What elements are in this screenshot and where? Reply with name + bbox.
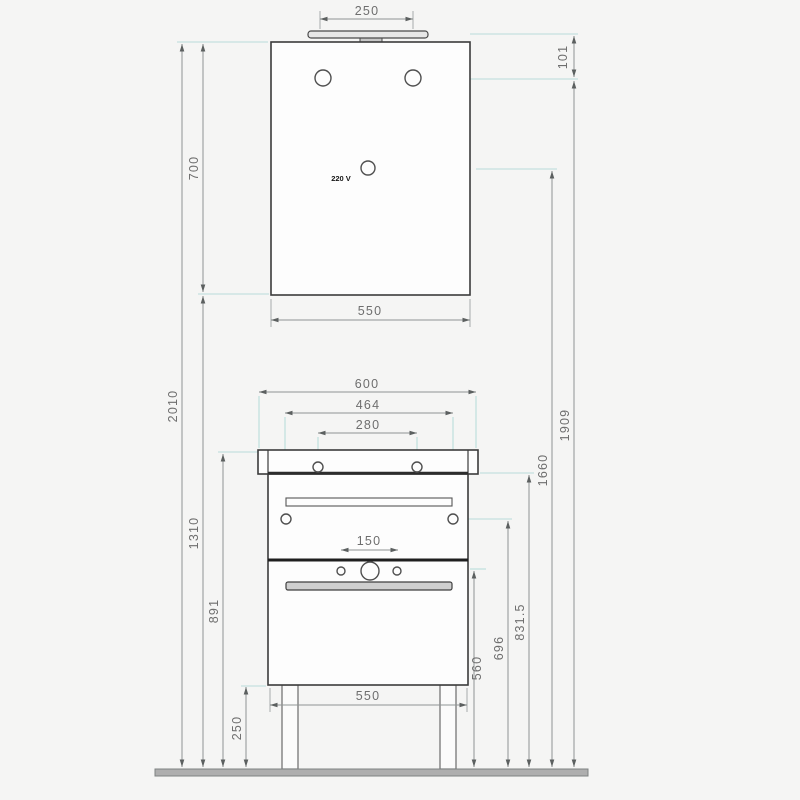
washbasin-countertop xyxy=(258,450,478,474)
floor-line xyxy=(155,769,588,776)
faucet-hole-right xyxy=(412,462,422,472)
socket-label: 220 V xyxy=(331,174,351,183)
dim-mirror-height: 700 xyxy=(187,44,203,292)
dim-basin-rim-height: 831.5 xyxy=(513,475,529,767)
dim-lamp-width-label: 250 xyxy=(355,4,379,18)
dim-drawer-holes-label: 150 xyxy=(357,534,381,548)
dim-holes-level-height-label: 1909 xyxy=(558,409,572,442)
dim-mirror-width-label: 550 xyxy=(358,304,382,318)
dim-faucet-holes-label: 280 xyxy=(356,418,380,432)
dim-cabinet-width-label: 550 xyxy=(356,689,380,703)
dim-worktop-height-label: 891 xyxy=(207,599,221,623)
upper-drawer-groove xyxy=(286,498,452,506)
dim-rear-holes-spacing: 464 xyxy=(285,398,453,413)
dim-washbasin-width: 600 xyxy=(259,377,476,392)
lower-drawer-handle xyxy=(286,582,452,590)
dim-mirror-bottom-clearance: 1310 xyxy=(187,296,203,767)
cabinet-leg-left xyxy=(282,685,298,769)
dim-holes-level-height: 1909 xyxy=(558,81,574,767)
dim-mirror-height-label: 700 xyxy=(187,156,201,180)
lower-hole-left xyxy=(337,567,345,575)
mirror-mounting-hole-left xyxy=(315,70,331,86)
light-fixture xyxy=(308,31,428,38)
side-mounting-hole-right xyxy=(448,514,458,524)
dim-lamp-offset-label: 101 xyxy=(556,45,570,69)
cabinet-leg-right xyxy=(440,685,456,769)
dim-lamp-width: 250 xyxy=(320,4,413,19)
side-mounting-hole-left xyxy=(281,514,291,524)
dim-worktop-height: 891 xyxy=(207,454,223,767)
power-socket-hole xyxy=(361,161,375,175)
dim-legs-height: 250 xyxy=(230,687,246,767)
dim-lower-holes-height: 560 xyxy=(470,571,484,767)
dim-basin-rim-height-label: 831.5 xyxy=(513,603,527,640)
faucet-hole-left xyxy=(313,462,323,472)
dim-rear-holes-label: 464 xyxy=(356,398,380,412)
dim-cabinet-width: 550 xyxy=(270,689,467,705)
dim-mirror-bottom-clearance-label: 1310 xyxy=(187,517,201,550)
dim-side-holes-height-label: 696 xyxy=(492,636,506,660)
dim-lamp-offset: 101 xyxy=(556,36,574,77)
dim-legs-height-label: 250 xyxy=(230,716,244,740)
dim-socket-height-label: 1660 xyxy=(536,454,550,487)
dim-side-holes-height: 696 xyxy=(492,521,508,767)
dim-mirror-width: 550 xyxy=(271,304,470,320)
lower-hole-right xyxy=(393,567,401,575)
dim-total-height-label: 2010 xyxy=(166,390,180,423)
dim-faucet-holes-spacing: 280 xyxy=(318,418,417,433)
drain-hole xyxy=(361,562,379,580)
mirror-unit: 220 V xyxy=(271,31,470,295)
dim-lower-holes-height-label: 560 xyxy=(470,656,484,680)
dim-total-height: 2010 xyxy=(166,44,182,767)
vanity-unit xyxy=(258,450,478,769)
dimension-drawing: 220 V 250 550 600 xyxy=(0,0,800,800)
mirror-mounting-hole-right xyxy=(405,70,421,86)
dim-socket-height: 1660 xyxy=(536,171,552,767)
technical-drawing-page: 220 V 250 550 600 xyxy=(0,0,800,800)
dim-washbasin-width-label: 600 xyxy=(355,377,379,391)
